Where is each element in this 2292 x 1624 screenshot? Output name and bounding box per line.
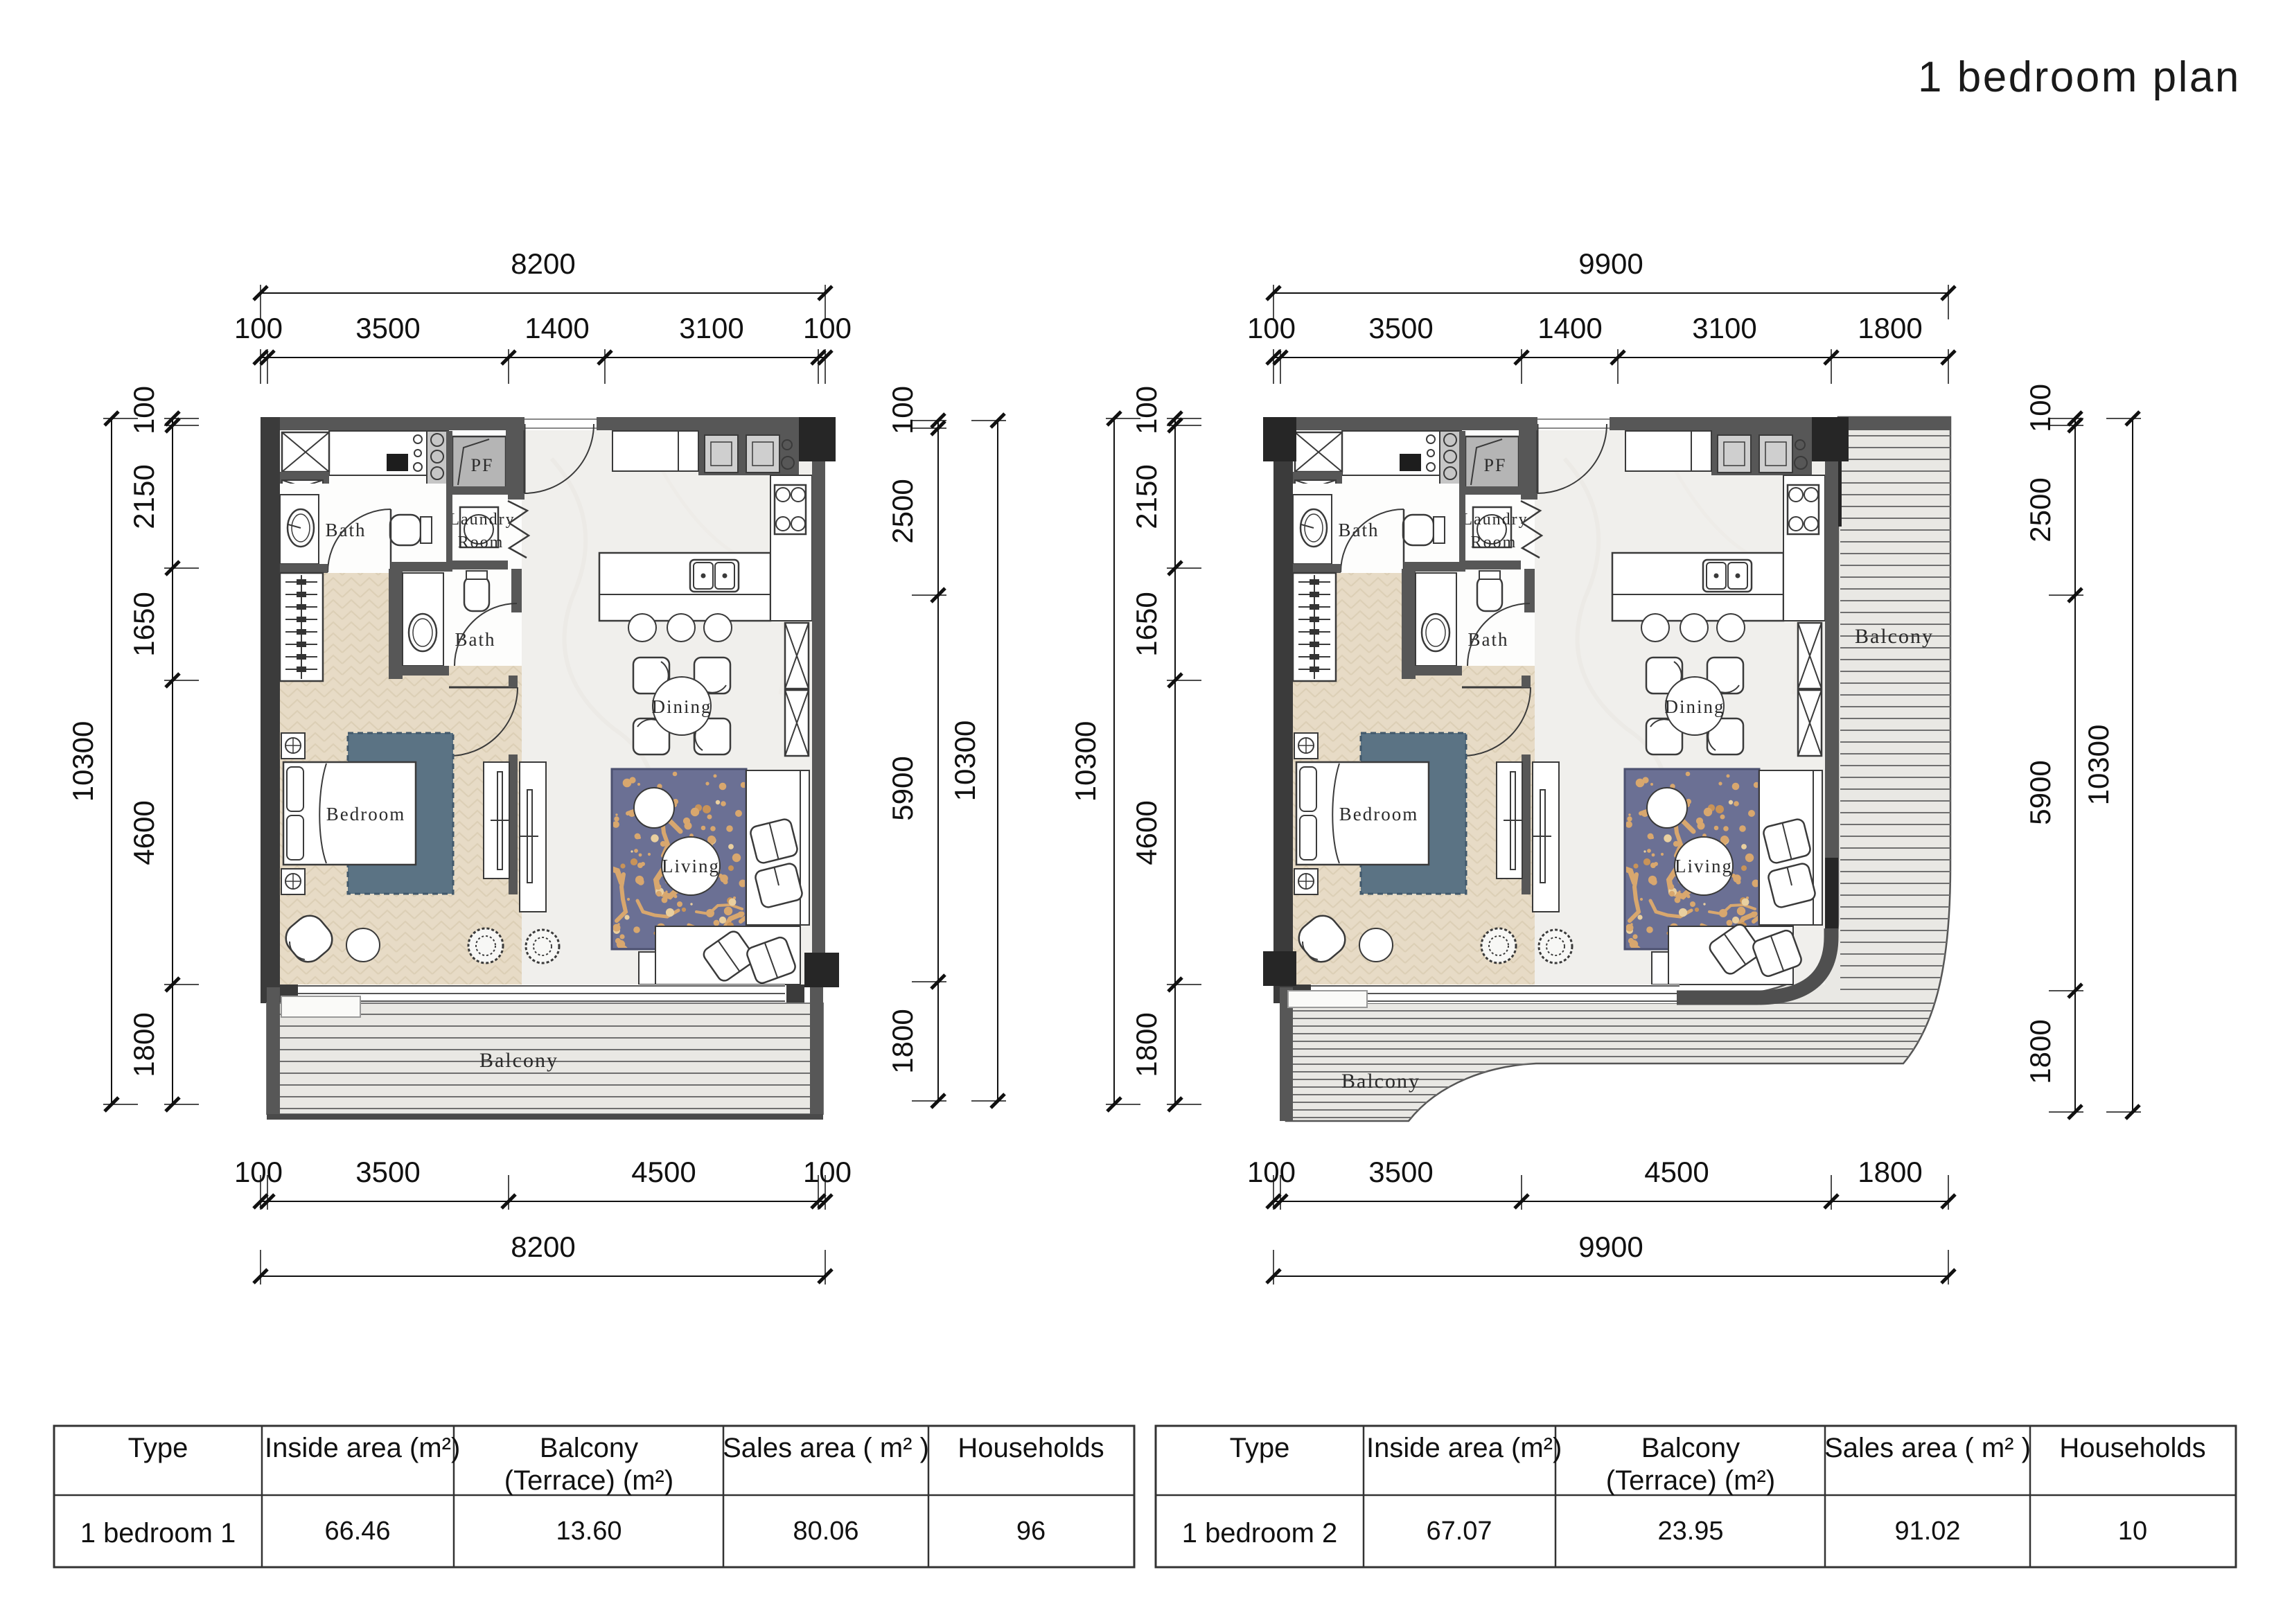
svg-text:Living: Living	[662, 856, 720, 876]
svg-text:100: 100	[234, 1156, 283, 1188]
svg-text:1 bedroom 1: 1 bedroom 1	[80, 1518, 236, 1548]
svg-text:1 bedroom plan: 1 bedroom plan	[1918, 53, 2241, 101]
svg-text:Dining: Dining	[651, 696, 712, 717]
svg-text:4600: 4600	[127, 800, 160, 865]
svg-text:80.06: 80.06	[793, 1517, 858, 1546]
svg-text:5900: 5900	[886, 756, 919, 820]
svg-text:3500: 3500	[355, 312, 420, 344]
svg-text:Households: Households	[958, 1433, 1104, 1463]
svg-text:66.46: 66.46	[324, 1517, 390, 1546]
svg-text:4500: 4500	[631, 1156, 696, 1188]
svg-text:100: 100	[1247, 1156, 1296, 1188]
svg-text:Sales area ( m² ): Sales area ( m² )	[1824, 1433, 2031, 1463]
svg-text:3100: 3100	[679, 312, 743, 344]
svg-text:Inside area (m²): Inside area (m²)	[1366, 1433, 1562, 1463]
svg-text:1800: 1800	[886, 1009, 919, 1073]
svg-text:96: 96	[1016, 1517, 1046, 1546]
svg-text:2500: 2500	[2024, 477, 2056, 542]
svg-text:23.95: 23.95	[1657, 1517, 1723, 1546]
svg-text:(Terrace) (m²): (Terrace) (m²)	[504, 1465, 673, 1496]
svg-text:100: 100	[234, 312, 283, 344]
svg-text:67.07: 67.07	[1426, 1517, 1492, 1546]
svg-text:10300: 10300	[67, 721, 99, 802]
svg-text:10300: 10300	[1069, 721, 1102, 802]
svg-text:1800: 1800	[127, 1012, 160, 1077]
svg-text:4500: 4500	[1644, 1156, 1709, 1188]
svg-text:1400: 1400	[1537, 312, 1602, 344]
svg-text:1800: 1800	[1130, 1012, 1163, 1077]
svg-text:Balcony: Balcony	[479, 1049, 558, 1072]
svg-text:Inside area (m²): Inside area (m²)	[265, 1433, 460, 1463]
svg-text:8200: 8200	[511, 1230, 575, 1263]
svg-text:(Terrace) (m²): (Terrace) (m²)	[1606, 1465, 1775, 1496]
svg-text:Balcony: Balcony	[1855, 625, 1934, 648]
svg-text:Balcony: Balcony	[1641, 1433, 1740, 1463]
svg-text:100: 100	[2024, 384, 2056, 432]
svg-text:100: 100	[1247, 312, 1296, 344]
svg-text:3500: 3500	[1368, 312, 1433, 344]
svg-text:100: 100	[803, 312, 852, 344]
svg-text:9900: 9900	[1578, 1230, 1643, 1263]
svg-text:Room: Room	[1471, 533, 1517, 551]
svg-text:100: 100	[803, 1156, 852, 1188]
svg-text:9900: 9900	[1578, 247, 1643, 280]
svg-text:2150: 2150	[127, 464, 160, 529]
svg-text:2500: 2500	[886, 479, 919, 543]
svg-text:1 bedroom 2: 1 bedroom 2	[1182, 1518, 1338, 1548]
svg-text:Room: Room	[458, 533, 504, 551]
svg-text:Bedroom: Bedroom	[1339, 804, 1419, 824]
svg-text:Households: Households	[2059, 1433, 2205, 1463]
svg-text:3500: 3500	[1368, 1156, 1433, 1188]
svg-text:8200: 8200	[511, 247, 575, 280]
svg-text:Type: Type	[128, 1433, 188, 1463]
svg-text:100: 100	[1130, 386, 1163, 434]
svg-text:10300: 10300	[2082, 725, 2115, 806]
svg-text:Laundry: Laundry	[449, 511, 515, 529]
svg-text:2150: 2150	[1130, 464, 1163, 529]
svg-text:10300: 10300	[949, 721, 981, 802]
svg-text:Type: Type	[1230, 1433, 1290, 1463]
svg-text:Bath: Bath	[1339, 520, 1379, 540]
svg-text:1800: 1800	[1858, 1156, 1922, 1188]
svg-text:1800: 1800	[2024, 1019, 2056, 1084]
svg-text:PF: PF	[1484, 455, 1507, 475]
svg-text:13.60: 13.60	[556, 1517, 622, 1546]
svg-text:Living: Living	[1675, 856, 1733, 876]
svg-text:1650: 1650	[1130, 592, 1163, 656]
svg-text:Laundry: Laundry	[1462, 511, 1528, 529]
svg-text:10: 10	[2118, 1517, 2147, 1546]
svg-text:100: 100	[886, 386, 919, 434]
svg-text:4600: 4600	[1130, 800, 1163, 865]
svg-text:1650: 1650	[127, 592, 160, 656]
svg-text:3500: 3500	[355, 1156, 420, 1188]
svg-text:Bedroom: Bedroom	[326, 804, 406, 824]
svg-text:Bath: Bath	[326, 520, 367, 540]
svg-text:91.02: 91.02	[1894, 1517, 1960, 1546]
svg-text:Balcony: Balcony	[1341, 1070, 1420, 1093]
svg-text:PF: PF	[471, 455, 494, 475]
svg-text:3100: 3100	[1692, 312, 1756, 344]
svg-text:Sales area ( m² ): Sales area ( m² )	[723, 1433, 929, 1463]
svg-text:Dining: Dining	[1664, 696, 1725, 717]
svg-text:5900: 5900	[2024, 760, 2056, 824]
svg-text:1400: 1400	[524, 312, 589, 344]
svg-text:100: 100	[127, 386, 160, 434]
svg-text:1800: 1800	[1858, 312, 1922, 344]
svg-text:Balcony: Balcony	[540, 1433, 638, 1463]
